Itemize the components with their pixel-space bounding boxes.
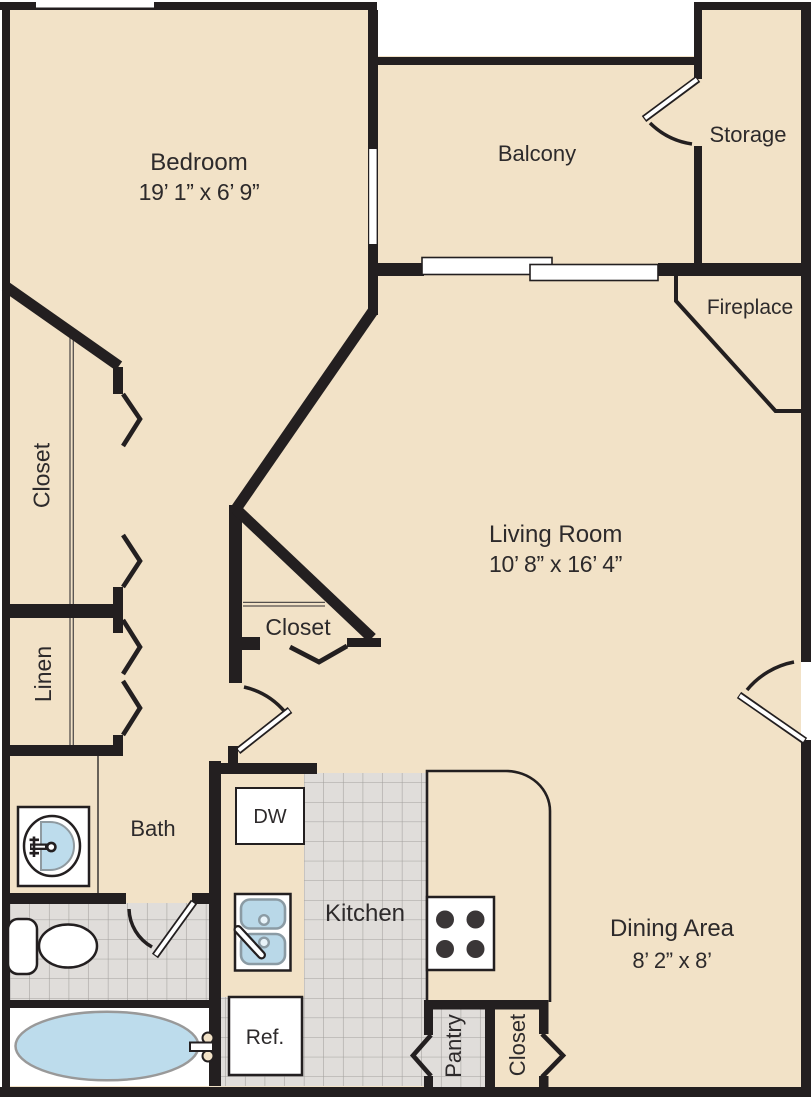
- svg-text:Closet: Closet: [505, 1014, 530, 1076]
- svg-text:Linen: Linen: [30, 646, 56, 702]
- svg-text:10’ 8” x 16’ 4”: 10’ 8” x 16’ 4”: [489, 551, 622, 577]
- svg-text:Balcony: Balcony: [498, 141, 576, 166]
- svg-text:Kitchen: Kitchen: [325, 900, 405, 927]
- svg-text:Ref.: Ref.: [246, 1026, 285, 1049]
- svg-text:Closet: Closet: [265, 614, 331, 640]
- svg-text:Fireplace: Fireplace: [707, 296, 793, 319]
- svg-text:Dining Area: Dining Area: [610, 915, 735, 942]
- svg-text:8’ 2” x 8’: 8’ 2” x 8’: [632, 948, 711, 973]
- svg-text:Pantry: Pantry: [441, 1014, 466, 1078]
- svg-text:Living Room: Living Room: [489, 521, 622, 548]
- svg-text:DW: DW: [253, 806, 286, 828]
- svg-text:Storage: Storage: [709, 122, 786, 147]
- svg-text:19’ 1” x 6’ 9”: 19’ 1” x 6’ 9”: [139, 179, 260, 205]
- svg-text:Closet: Closet: [29, 442, 55, 508]
- svg-text:Bedroom: Bedroom: [150, 149, 247, 176]
- svg-text:Bath: Bath: [130, 816, 175, 841]
